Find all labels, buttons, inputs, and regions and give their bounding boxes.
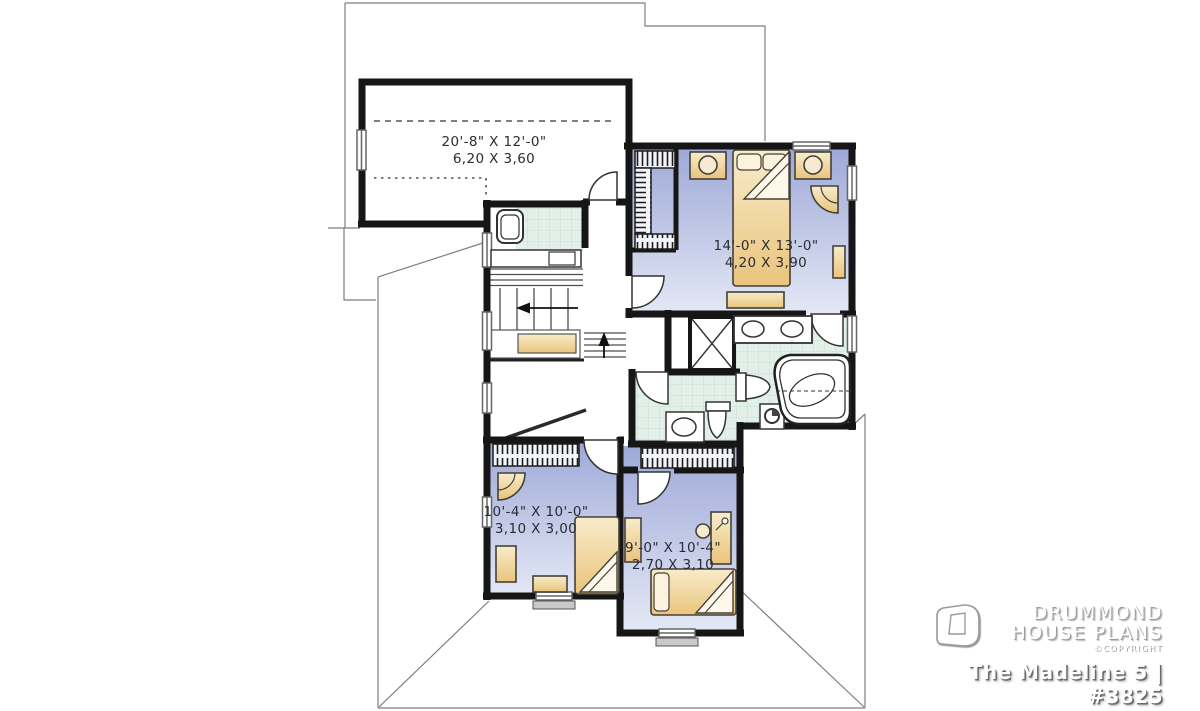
window-sill xyxy=(656,638,698,646)
bedroom3-label: 9'-0" X 10'-4" 2,70 X 3,10 xyxy=(625,540,721,574)
bonus-room-dims-metric: 6,20 X 3,60 xyxy=(442,151,547,168)
drummond-d-icon xyxy=(935,603,981,647)
sink xyxy=(549,252,575,265)
window-sill xyxy=(533,601,575,609)
window xyxy=(483,383,492,413)
window xyxy=(659,629,695,637)
corner-bathtub xyxy=(775,355,851,424)
bench xyxy=(533,576,567,592)
bath3-floor xyxy=(516,206,583,252)
master-bedroom-dims-metric: 4,20 X 3,90 xyxy=(714,255,819,272)
sink xyxy=(672,418,696,436)
bonus-room-label: 20'-8" X 12'-0" 6,20 X 3,60 xyxy=(442,134,547,168)
master-bedroom-dims-imperial: 14'-0" X 13'-0" xyxy=(714,238,819,255)
bonus-room-dims-imperial: 20'-8" X 12'-0" xyxy=(442,134,547,151)
brand-copyright: ©COPYRIGHT xyxy=(1011,644,1163,653)
dresser xyxy=(727,292,784,308)
sink xyxy=(781,321,803,337)
toilet xyxy=(706,402,730,411)
lamp xyxy=(699,156,717,174)
brand-name-line1: DRUMMOND xyxy=(1011,603,1163,623)
window xyxy=(483,312,492,350)
bedroom2-dims-metric: 3,10 X 3,00 xyxy=(484,521,589,538)
linen-closet-shelf xyxy=(641,448,734,468)
dresser xyxy=(496,546,516,582)
brand-name-line2: HOUSE PLANS xyxy=(1011,623,1163,643)
landing-rug xyxy=(518,334,576,353)
bed xyxy=(651,569,736,615)
master-bedroom-label: 14'-0" X 13'-0" 4,20 X 3,90 xyxy=(714,238,819,272)
master-closet-shelf-side xyxy=(635,168,651,234)
desk-lamp xyxy=(722,518,728,524)
master-closet-shelf-bottom xyxy=(635,234,675,249)
window xyxy=(357,130,366,170)
window xyxy=(483,233,492,267)
floor-plan-canvas: 20'-8" X 12'-0" 6,20 X 3,60 14'-0" X 13'… xyxy=(0,0,1200,711)
bedroom3-dims-imperial: 9'-0" X 10'-4" xyxy=(625,540,721,557)
window xyxy=(848,166,857,200)
master-closet-shelf-top xyxy=(635,151,675,168)
toilet xyxy=(736,373,746,401)
side-table xyxy=(833,246,845,278)
bonus-room-door xyxy=(589,172,617,200)
plan-title: The Madeline 5 | #3825 xyxy=(935,660,1163,708)
brand-block: DRUMMOND HOUSE PLANS ©COPYRIGHT The Made… xyxy=(935,603,1163,708)
window xyxy=(848,316,857,352)
sink xyxy=(742,321,764,337)
bedroom3-dims-metric: 2,70 X 3,10 xyxy=(625,557,721,574)
bedroom2-closet-shelf xyxy=(493,444,579,466)
angled-hall-wall xyxy=(503,410,586,439)
lamp xyxy=(804,156,822,174)
staircase xyxy=(487,269,626,439)
window xyxy=(536,592,572,600)
desk-chair xyxy=(696,524,710,538)
bedroom2-dims-imperial: 10'-4" X 10'-0" xyxy=(484,504,589,521)
window xyxy=(793,142,830,150)
bedroom2-label: 10'-4" X 10'-0" 3,10 X 3,00 xyxy=(484,504,589,538)
